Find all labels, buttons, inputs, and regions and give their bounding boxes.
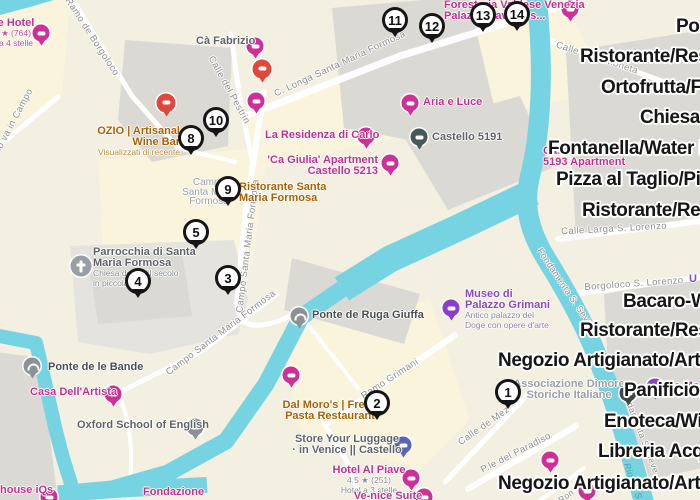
poi-name-line: Casa Dell'Artista [30,387,117,398]
marker-number: 5 [192,225,199,240]
ca-giulia-apartment-pin-icon[interactable] [382,155,399,172]
marker-number: 14 [510,7,524,22]
poi-label-ristorante-santa-maria-formosa[interactable]: Ristorante SantaMaria Formosa [239,182,326,204]
poi-name-line: Maria Formosa [239,193,326,204]
list-marker-3[interactable]: 3 [215,265,241,291]
poi-label-store-your-luggage[interactable]: Store Your Luggage· in Venice || Castell… [292,434,401,456]
poi-label-casa-dell-artista[interactable]: Casa Dell'Artista [30,387,117,398]
aria-e-luce-pin-icon[interactable] [402,95,419,112]
marker-number: 12 [425,19,439,34]
poi-name-line: La Residenza di Carlo [265,130,379,141]
poi-name-line: U [689,274,697,285]
poi-label-hotel-topleft[interactable]: e Hotel★ (764)a 4 stelle [0,18,34,48]
overlay-caption-negozio-artigianato-artisan-9: Negozio Artigianato/Artisan [498,350,700,372]
list-marker-12[interactable]: 12 [419,13,445,39]
map-canvas[interactable]: Ramo de BorgolocoRamo va in CampoCalle d… [0,0,700,500]
overlay-caption-fontanella-water-fo-4: Fontanella/Water Fo [548,138,700,160]
marker-number: 1 [504,385,511,400]
overlay-caption-ortofrutta-fru-2: Ortofrutta/Fru [601,77,700,99]
marker-number: 10 [209,113,223,128]
poi-label-ponte-de-le-bande[interactable]: Ponte de le Bande [48,362,143,373]
ponte-de-le-bande-pin-icon[interactable] [24,358,41,375]
poi-label-ve-nice-suite[interactable]: Ve-nice Suite [354,491,422,500]
poi-name-line: Pasta Restaurant [283,411,378,422]
overlay-caption-libreria-acqu-12: Libreria Acqu [598,441,700,463]
hotel-topleft-pin-icon[interactable] [33,25,50,42]
list-marker-11[interactable]: 11 [382,7,408,33]
poi-sub-line: Visualizzati di recente [97,148,180,158]
poi-name-line: house iQs [0,485,53,496]
overlay-caption-negozio-artigianato-artisan-13: Negozio Artigianato/Artisan [498,473,700,495]
overlay-caption-chiesa-c-3: Chiesa/C [640,107,700,129]
list-marker-2[interactable]: 2 [364,390,390,416]
poi-label-la-residenza-di-carlo[interactable]: La Residenza di Carlo [265,130,379,141]
parrocchia-santa-maria-formosa-pin-icon[interactable] [71,256,92,277]
poi-label-oxford-school-of-english[interactable]: Oxford School of English [77,420,209,431]
list-marker-14[interactable]: 14 [504,1,530,27]
marker-number: 9 [224,182,231,197]
poi-label-associazione-dimore[interactable]: Associazione DimoreStoriche Italiane [513,379,624,401]
pink-map-pin-icon[interactable] [248,93,265,110]
list-marker-4[interactable]: 4 [125,268,151,294]
overlay-caption-ristorante-rest-1: Ristorante/Rest [580,46,700,68]
red-map-pin-icon[interactable] [253,60,272,79]
overlay-caption-ristorante-rest-8: Ristorante/Rest [580,320,700,342]
poi-label-ponte-de-ruga-giuffa[interactable]: Ponte de Ruga Giuffa [312,310,424,321]
poi-label-fondazione[interactable]: Fondazione [143,487,204,498]
poi-label-u-fragment[interactable]: U [689,274,697,285]
ponte-de-ruga-giuffa-pin-icon[interactable] [291,308,308,325]
marker-number: 8 [187,131,194,146]
pink-map-pin-icon[interactable] [283,367,300,384]
poi-label-house-iqs[interactable]: house iQs [0,485,53,496]
overlay-caption-por-0: Por [676,16,700,38]
poi-name-line: Castello 5213 [267,166,378,177]
list-marker-5[interactable]: 5 [183,219,209,245]
list-marker-9[interactable]: 9 [215,176,241,202]
poi-label-ca-fabrizio[interactable]: Cà Fabrizio [196,36,255,47]
poi-name-line: Oxford School of English [77,420,209,431]
overlay-caption-panificio-10: Panificio/ [624,380,700,402]
museo-di-palazzo-grimani-pin-icon[interactable] [443,300,460,317]
marker-number: 13 [476,8,490,23]
poi-name-line: · in Venice || Castello [292,445,401,456]
overlay-caption-ristorante-rest-6: Ristorante/Rest [582,200,700,222]
poi-name-line: Fondazione [143,487,204,498]
overlay-caption-bacaro-wi-7: Bacaro-Wi [623,291,700,313]
poi-name-line: Aria e Luce [423,97,482,108]
canal-rio-formosa [342,192,533,289]
list-marker-13[interactable]: 13 [470,2,496,28]
poi-sub-line: a 4 stelle [0,39,34,49]
poi-label-ozio-wine-bar[interactable]: OZIO | ArtisanalWine BarVisualizzati di … [97,126,180,158]
list-marker-8[interactable]: 8 [178,125,204,151]
poi-name-line: Ponte de Ruga Giuffa [312,310,424,321]
pink-map-pin-icon[interactable] [542,452,559,469]
marker-number: 11 [388,13,402,28]
marker-number: 4 [134,274,141,289]
poi-label-aria-e-luce[interactable]: Aria e Luce [423,97,482,108]
marker-number: 3 [224,271,231,286]
poi-name-line: Ponte de le Bande [48,362,143,373]
overlay-caption-enoteca-win-11: Enoteca/Win [604,411,700,433]
list-marker-1[interactable]: 1 [495,379,521,405]
poi-name-line: Ve-nice Suite [354,491,422,500]
poi-name-line: Cà Fabrizio [196,36,255,47]
poi-name-line: Storiche Italiane [513,390,624,401]
red-map-pin-icon[interactable] [157,94,176,113]
poi-name-line: Castello 5191 [432,132,502,143]
list-marker-10[interactable]: 10 [203,107,229,133]
overlay-caption-pizza-al-taglio-pizza-5: Pizza al Taglio/Pizza [556,169,700,191]
castello-5191-pin-icon[interactable] [411,129,428,146]
poi-label-castello-5191[interactable]: Castello 5191 [432,132,502,143]
marker-number: 2 [373,396,380,411]
poi-sub-line: Doge con opere d'arte [465,321,550,331]
poi-label-museo-di-palazzo-grimani[interactable]: Museo diPalazzo GrimaniAntico palazzo de… [465,289,550,330]
poi-label-ca-giulia-apartment[interactable]: 'Ca Giulia' ApartmentCastello 5213 [267,155,378,177]
